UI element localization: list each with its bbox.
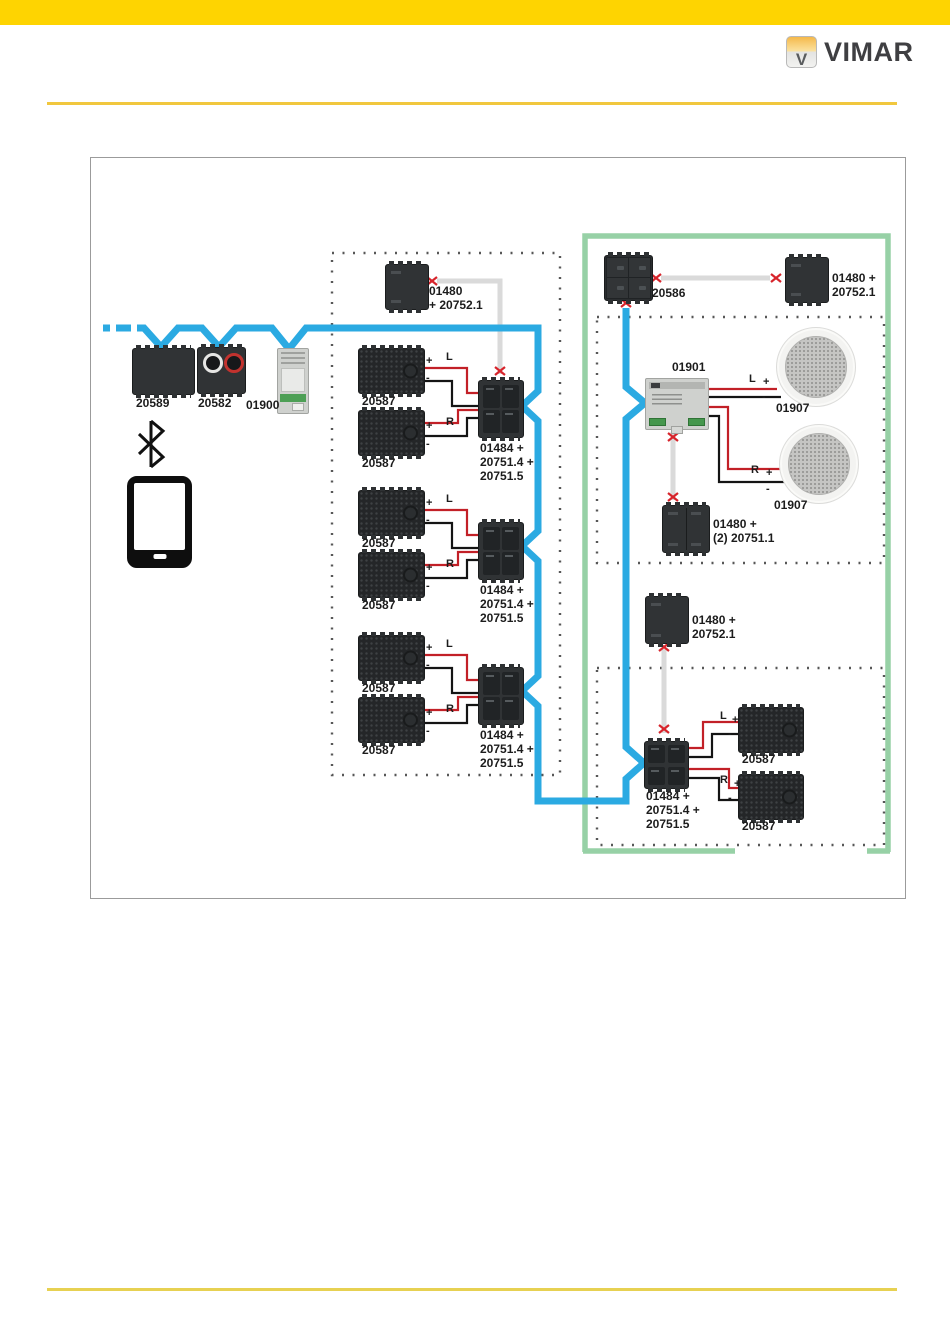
polarity-label: + <box>426 642 432 655</box>
amplifier-module <box>478 380 524 438</box>
part-number: + 20752.1 <box>429 299 483 313</box>
part-number: 01484 + <box>646 790 690 804</box>
din-foot <box>671 426 683 434</box>
part-number: 20751.5 <box>646 818 689 832</box>
keypad-module <box>604 255 653 301</box>
part-number: 20587 <box>362 599 395 613</box>
channel-label: R <box>446 558 454 571</box>
speaker-cone-icon <box>403 651 418 666</box>
part-number: 01907 <box>774 499 807 513</box>
off-mark <box>791 293 801 296</box>
speaker-module <box>738 707 804 753</box>
part-number: 20751.4 + <box>646 804 700 818</box>
keypad-button <box>606 257 629 279</box>
on-mark <box>691 512 701 515</box>
ceiling-speaker <box>776 327 856 407</box>
polarity-label: + <box>732 714 738 727</box>
rca-input-module <box>197 347 246 394</box>
part-number: 01480 + <box>692 614 736 628</box>
part-number: 01901 <box>672 361 705 375</box>
amp-button <box>483 410 500 433</box>
amp-button <box>502 527 519 550</box>
channel-label: L <box>446 493 453 506</box>
channel-label: R <box>446 703 454 716</box>
part-number: 20586 <box>652 287 685 301</box>
amp-button <box>483 697 500 720</box>
din-foot <box>292 403 304 411</box>
on-mark <box>651 603 661 606</box>
speaker-module <box>358 697 425 743</box>
relay-control-module <box>645 596 689 644</box>
part-number: 20587 <box>362 537 395 551</box>
channel-label: R <box>720 774 728 787</box>
channel-label: R <box>446 416 454 429</box>
polarity-label: + <box>426 420 432 433</box>
part-number: 20751.5 <box>480 470 523 484</box>
speaker-module <box>358 635 425 681</box>
polarity-label: - <box>426 659 430 672</box>
part-number: 01484 + <box>480 729 524 743</box>
polarity-label: - <box>728 728 732 741</box>
part-number: 01900 <box>246 399 279 413</box>
on-mark <box>791 264 801 267</box>
part-number: 20587 <box>362 395 395 409</box>
keypad-button <box>628 257 651 279</box>
polarity-label: + <box>426 355 432 368</box>
part-number: 20589 <box>136 397 169 411</box>
channel-label: L <box>749 373 756 386</box>
amp-button <box>648 745 665 763</box>
amp-button <box>502 697 519 720</box>
speaker-mesh <box>785 336 847 398</box>
amp-button <box>483 385 500 408</box>
twisted-pair-marks <box>427 274 781 733</box>
off-mark <box>391 300 401 303</box>
polarity-label: - <box>762 391 766 404</box>
part-number: 01480 + <box>713 518 757 532</box>
din-terminal-block <box>280 394 306 402</box>
speaker-cone-icon <box>403 713 418 728</box>
channel-label: L <box>446 638 453 651</box>
amp-button <box>483 552 500 575</box>
amplifier-module <box>644 741 689 789</box>
speaker-cone-icon <box>403 426 418 441</box>
sound-system-din-module <box>277 348 309 414</box>
part-number: 20751.5 <box>480 757 523 771</box>
double-relay-module <box>662 505 710 553</box>
polarity-label: - <box>426 438 430 451</box>
part-number: 01907 <box>776 402 809 416</box>
polarity-label: - <box>426 372 430 385</box>
polarity-label: - <box>426 580 430 593</box>
wiring-layer <box>0 0 950 1344</box>
polarity-label: - <box>766 483 770 496</box>
amp-button <box>648 767 665 785</box>
speaker-cone-icon <box>782 790 797 805</box>
bluetooth-receiver-module <box>132 348 195 395</box>
polarity-label: + <box>766 467 772 480</box>
speaker-mesh <box>788 433 850 495</box>
smartphone-screen <box>134 483 185 550</box>
twisted-pair-x-icon <box>771 274 781 282</box>
speaker-cone-icon <box>403 364 418 379</box>
smartphone-home-button <box>153 554 166 559</box>
amp-button <box>502 672 519 695</box>
amp-button <box>502 552 519 575</box>
smartphone-icon <box>127 476 192 568</box>
amp-button <box>502 385 519 408</box>
part-number: 20582 <box>198 397 231 411</box>
part-number: 01480 + <box>832 272 876 286</box>
channel-label: R <box>751 464 759 477</box>
polarity-label: + <box>426 707 432 720</box>
speaker-cone-icon <box>403 506 418 521</box>
part-number: 20587 <box>742 753 775 767</box>
part-number: 01484 + <box>480 584 524 598</box>
polarity-label: - <box>728 792 732 805</box>
off-mark <box>691 543 701 546</box>
channel-label: L <box>446 351 453 364</box>
din-amplifier-module <box>645 378 709 430</box>
part-number: 01484 + <box>480 442 524 456</box>
keypad-button <box>628 277 651 299</box>
on-mark <box>668 512 678 515</box>
amp-button <box>668 745 685 763</box>
speaker-cone-icon <box>403 568 418 583</box>
din-amp-header <box>649 382 705 389</box>
part-number: 20587 <box>742 820 775 834</box>
amplifier-module <box>478 667 524 725</box>
polarity-label: - <box>426 725 430 738</box>
speaker-cone-icon <box>782 723 797 738</box>
part-number: 20751.4 + <box>480 598 534 612</box>
ceiling-speaker <box>779 424 859 504</box>
speaker-module <box>358 348 425 394</box>
amp-button <box>483 527 500 550</box>
part-number: 20751.5 <box>480 612 523 626</box>
amplifier-module <box>478 522 524 580</box>
part-number: (2) 20751.1 <box>713 532 774 546</box>
part-number: 20587 <box>362 457 395 471</box>
part-number: 20751.4 + <box>480 743 534 757</box>
amp-button <box>668 767 685 785</box>
din-terminal-block <box>649 418 666 426</box>
on-mark <box>391 271 401 274</box>
rca-jack-white-icon <box>203 353 223 373</box>
part-number: 20752.1 <box>692 628 735 642</box>
amp-button <box>483 672 500 695</box>
amp-button <box>502 410 519 433</box>
din-vents <box>281 352 305 365</box>
polarity-label: - <box>426 514 430 527</box>
din-label-window <box>281 368 305 392</box>
polarity-label: + <box>763 376 769 389</box>
rca-jack-red-icon <box>224 353 244 373</box>
off-mark <box>668 543 678 546</box>
polarity-label: + <box>734 778 740 791</box>
speaker-module <box>358 552 425 598</box>
channel-label: L <box>720 710 727 723</box>
part-number: 20752.1 <box>832 286 875 300</box>
part-number: 20587 <box>362 682 395 696</box>
polarity-label: + <box>426 562 432 575</box>
bluetooth-icon <box>134 418 168 470</box>
part-number: 20751.4 + <box>480 456 534 470</box>
din-terminal-block <box>688 418 705 426</box>
relay-control-module <box>385 264 429 310</box>
speaker-module <box>738 774 804 820</box>
keypad-button <box>606 277 629 299</box>
part-number: 01480 <box>429 285 462 299</box>
off-mark <box>651 634 661 637</box>
speaker-module <box>358 410 425 456</box>
relay-control-module <box>785 257 829 303</box>
speaker-module <box>358 490 425 536</box>
part-number: 20587 <box>362 744 395 758</box>
module-divider <box>686 508 687 550</box>
polarity-label: + <box>426 497 432 510</box>
din-amp-text-lines <box>652 394 682 406</box>
document-page: V VIMAR <box>0 0 950 1344</box>
